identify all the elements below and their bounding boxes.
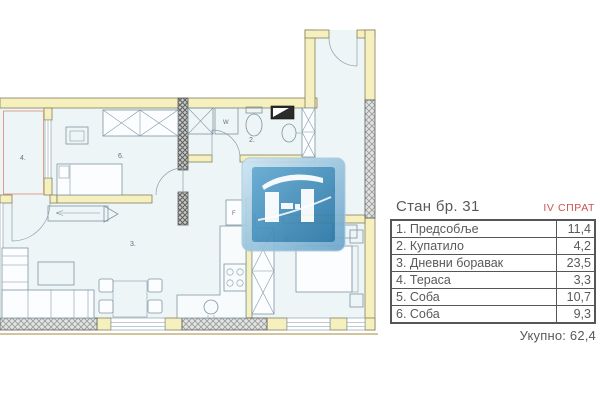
room-name: 6. Соба xyxy=(391,306,557,324)
developer-logo-watermark xyxy=(242,158,345,251)
room-name: 5. Соба xyxy=(391,289,557,306)
room-area: 23,5 xyxy=(557,255,596,272)
room-label-living: 3. xyxy=(130,241,136,248)
chair xyxy=(148,300,162,313)
room-label-terrace: 4. xyxy=(20,155,26,162)
chair xyxy=(99,300,113,313)
room-label-bathroom: 2. xyxy=(249,137,255,144)
fridge-label: F xyxy=(232,211,236,217)
panel-header: Стан бр. 31 IV СПРАТ xyxy=(390,198,596,219)
room-name: 1. Предсобље xyxy=(391,220,557,238)
bed xyxy=(296,246,352,292)
washer-label: W xyxy=(223,120,229,126)
room-area: 3,3 xyxy=(557,272,596,289)
floor-badge: IV СПРАТ xyxy=(543,202,595,214)
chair xyxy=(99,279,113,292)
room-label-bedroom6: 6. xyxy=(118,153,124,160)
table-row: 1. Предсобље 11,4 xyxy=(391,220,595,238)
chair xyxy=(148,279,162,292)
room-area: 4,2 xyxy=(557,238,596,255)
table-row: 2. Купатило 4,2 xyxy=(391,238,595,255)
table-row: 6. Соба 9,3 xyxy=(391,306,595,324)
room-area-table: 1. Предсобље 11,4 2. Купатило 4,2 3. Дне… xyxy=(390,219,596,324)
room-name: 2. Купатило xyxy=(391,238,557,255)
apartment-title: Стан бр. 31 xyxy=(396,198,480,215)
table-row: 3. Дневни боравак 23,5 xyxy=(391,255,595,272)
table-row: 4. Тераса 3,3 xyxy=(391,272,595,289)
room-area: 9,3 xyxy=(557,306,596,324)
apartment-info-panel: Стан бр. 31 IV СПРАТ 1. Предсобље 11,4 2… xyxy=(390,198,596,343)
room-area: 10,7 xyxy=(557,289,596,306)
table-row: 5. Соба 10,7 xyxy=(391,289,595,306)
floor-plan: 4. 6. 3. 2. 1. 5. W F xyxy=(0,0,380,345)
room-name: 4. Тераса xyxy=(391,272,557,289)
total-area: Укупно: 62,4 xyxy=(390,328,596,343)
room-name: 3. Дневни боравак xyxy=(391,255,557,272)
room-area: 11,4 xyxy=(557,220,596,238)
